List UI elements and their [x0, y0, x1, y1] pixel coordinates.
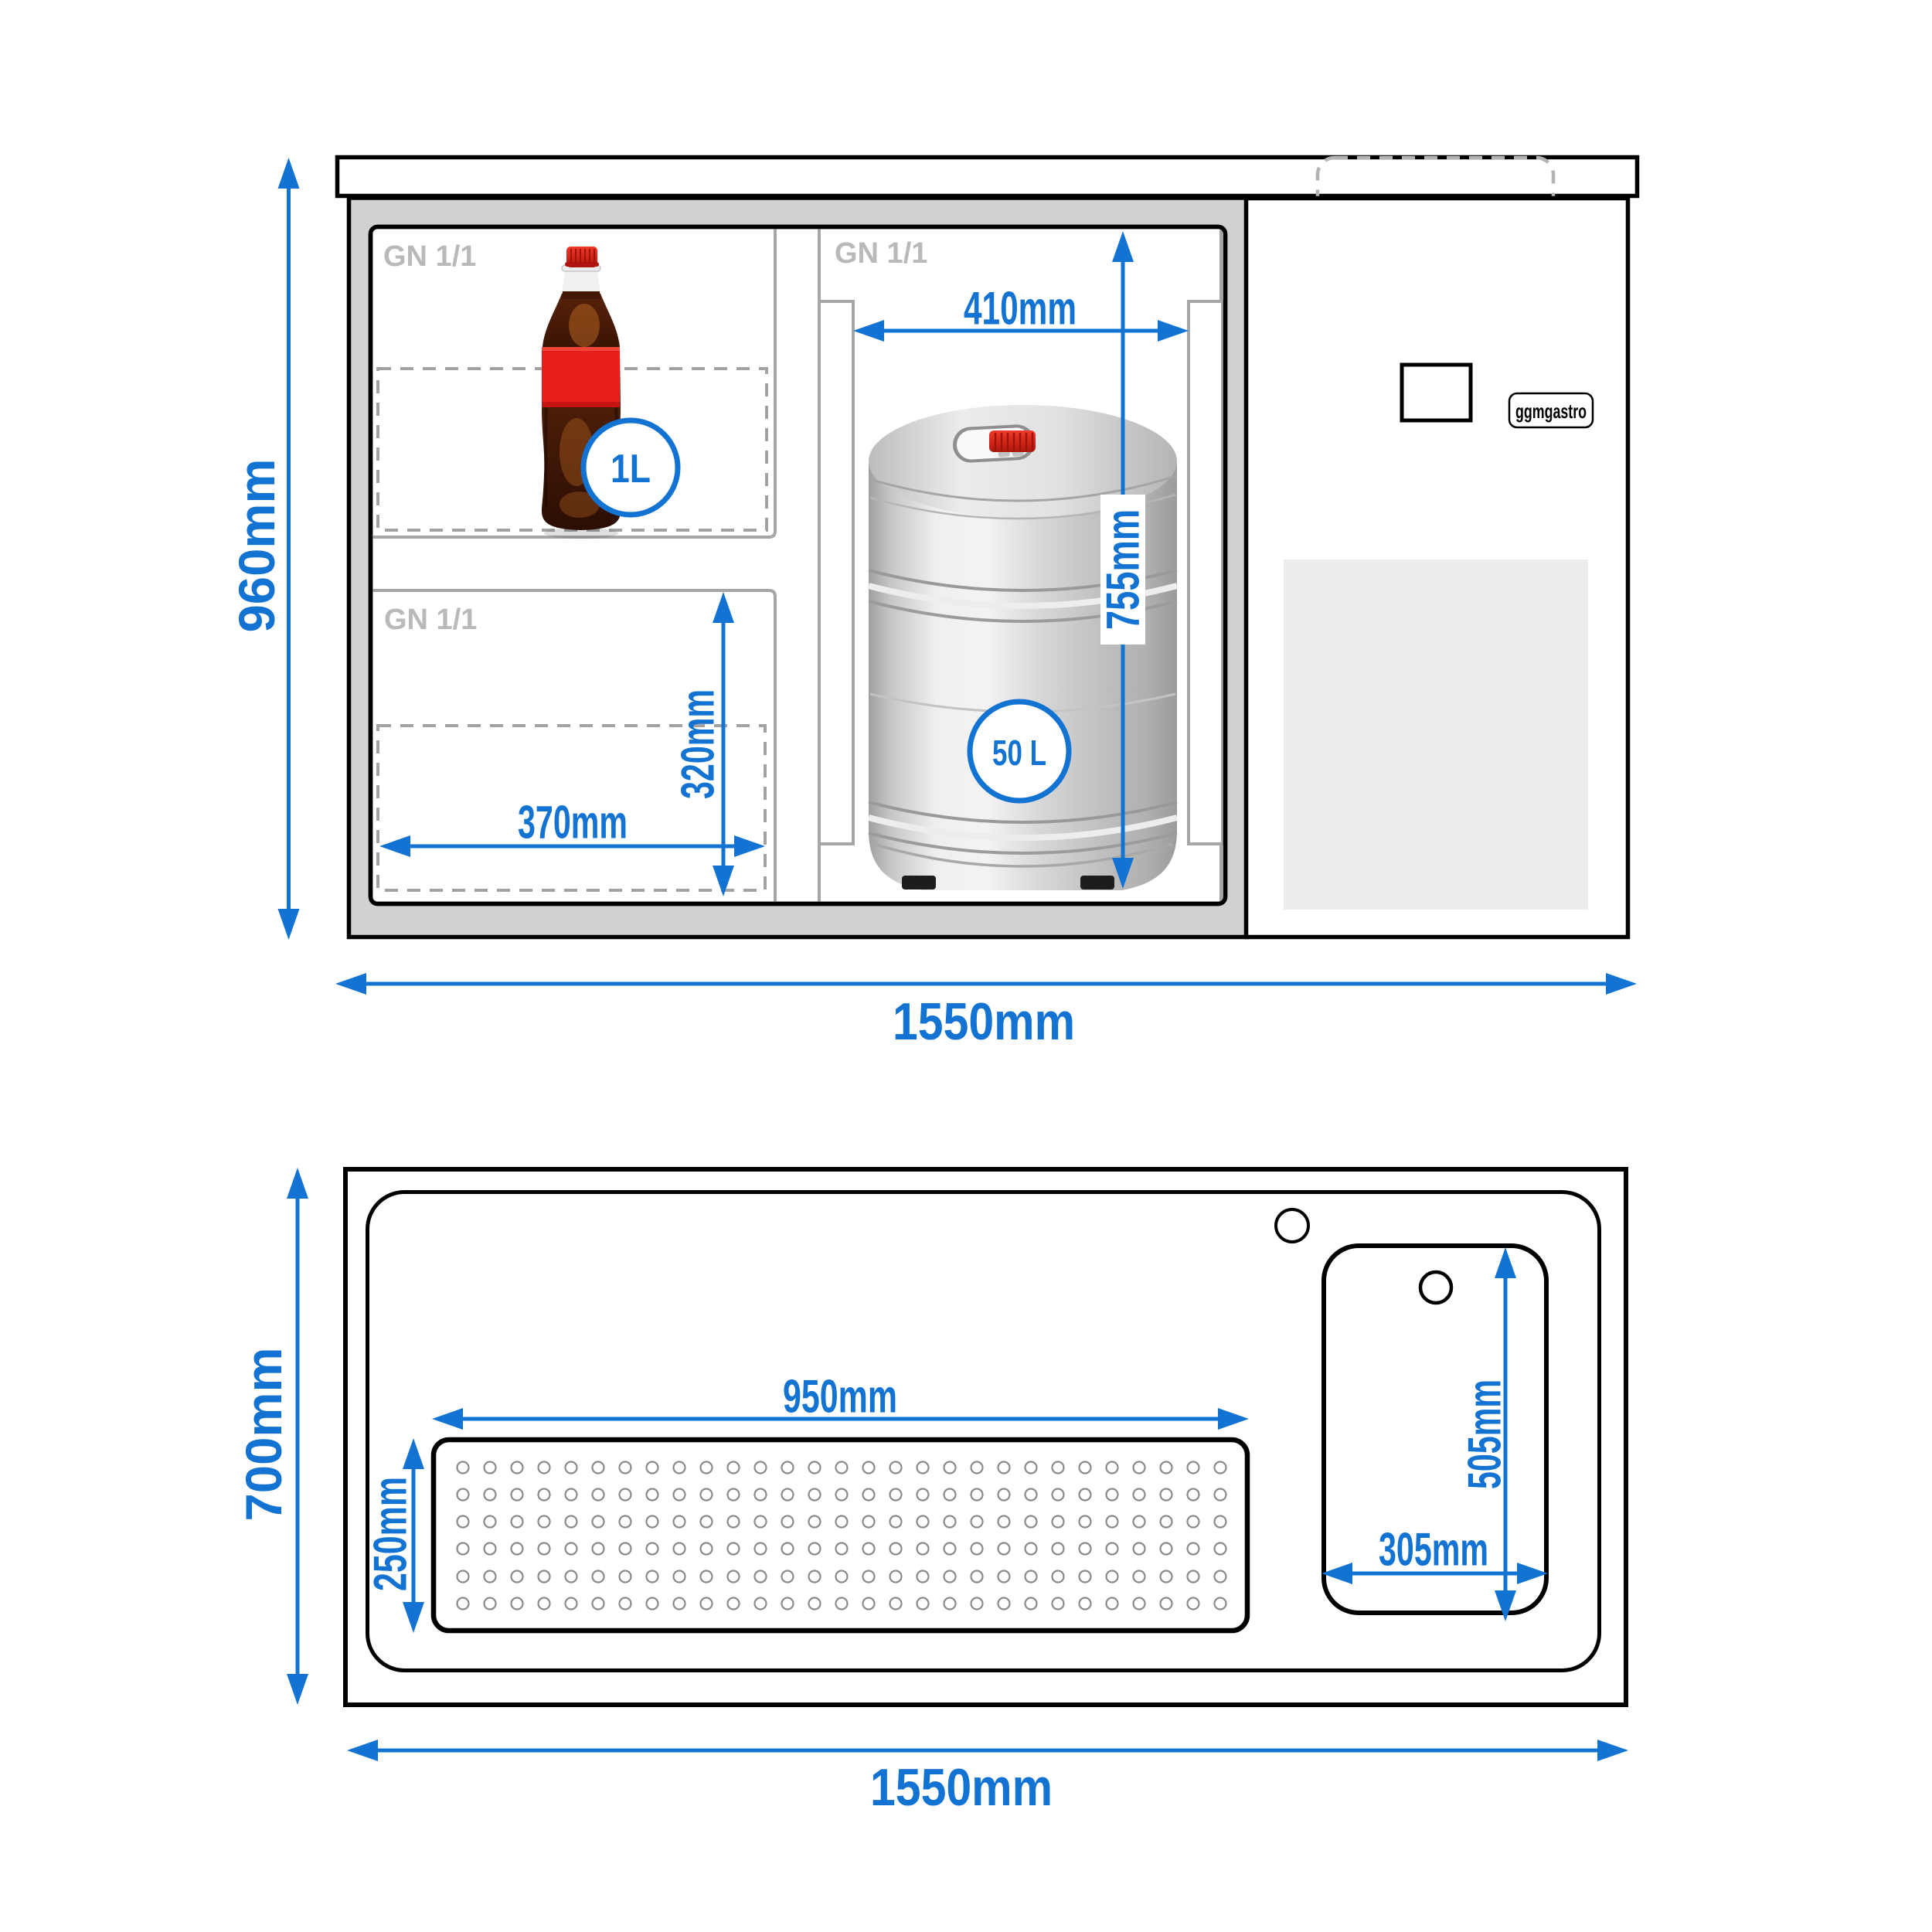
svg-text:505mm: 505mm	[1459, 1379, 1511, 1489]
svg-text:1550mm: 1550mm	[893, 992, 1075, 1051]
svg-text:700mm: 700mm	[235, 1348, 292, 1522]
svg-text:755mm: 755mm	[1097, 509, 1149, 630]
svg-text:370mm: 370mm	[518, 797, 628, 849]
svg-text:305mm: 305mm	[1379, 1524, 1488, 1576]
svg-text:GN 1/1: GN 1/1	[384, 604, 477, 636]
svg-text:960mm: 960mm	[228, 459, 285, 633]
svg-text:GN 1/1: GN 1/1	[383, 240, 476, 273]
svg-text:250mm: 250mm	[365, 1477, 417, 1591]
svg-text:410mm: 410mm	[964, 283, 1077, 335]
svg-text:50 L: 50 L	[992, 733, 1046, 773]
svg-text:ggmgastro: ggmgastro	[1515, 400, 1587, 423]
svg-text:950mm: 950mm	[783, 1371, 897, 1423]
svg-text:GN 1/1: GN 1/1	[835, 237, 927, 270]
svg-text:1550mm: 1550mm	[870, 1758, 1053, 1817]
svg-text:1L: 1L	[611, 447, 651, 492]
svg-text:320mm: 320mm	[672, 689, 724, 799]
